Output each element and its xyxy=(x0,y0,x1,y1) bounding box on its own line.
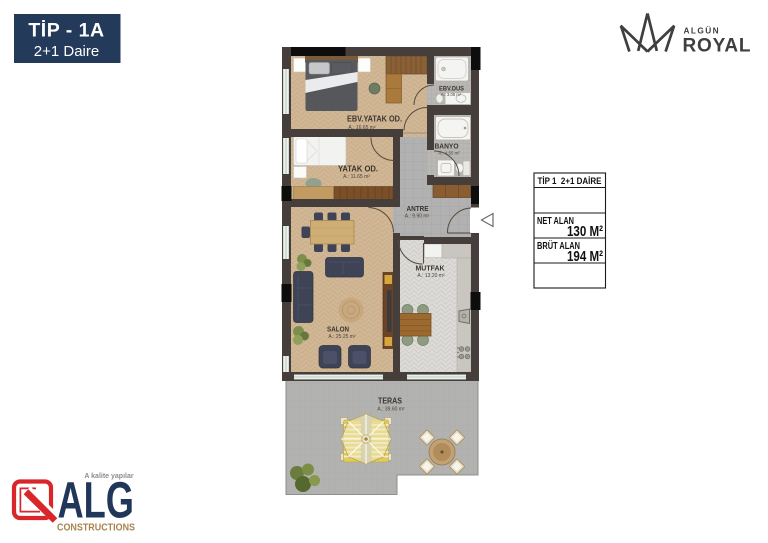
svg-text:194 M²: 194 M² xyxy=(567,248,603,265)
svg-text:A.: 3.08 m²: A.: 3.08 m² xyxy=(441,92,462,97)
svg-text:130 M²: 130 M² xyxy=(567,223,603,240)
svg-text:A.: 9.90 m²: A.: 9.90 m² xyxy=(405,214,430,220)
svg-text:A.: 13.20 m²: A.: 13.20 m² xyxy=(417,273,445,279)
svg-text:ROYAL: ROYAL xyxy=(683,36,752,57)
svg-text:2+1 Daire: 2+1 Daire xyxy=(34,43,99,60)
svg-text:A.: 39.60 m²: A.: 39.60 m² xyxy=(377,407,405,413)
svg-text:A.: 16.65 m²: A.: 16.65 m² xyxy=(348,125,376,131)
svg-text:TİP 1 2+1 DAİRE: TİP 1 2+1 DAİRE xyxy=(538,176,602,186)
svg-text:EBV.YATAK OD.: EBV.YATAK OD. xyxy=(347,115,402,124)
svg-text:TİP - 1A: TİP - 1A xyxy=(28,19,104,42)
svg-text:SALON: SALON xyxy=(327,325,349,334)
svg-text:ALG: ALG xyxy=(58,472,135,529)
svg-text:TERAS: TERAS xyxy=(378,396,402,406)
svg-text:CONSTRUCTIONS: CONSTRUCTIONS xyxy=(57,523,135,534)
svg-text:MUTFAK: MUTFAK xyxy=(416,264,445,273)
svg-text:A.: 25.25 m²: A.: 25.25 m² xyxy=(328,334,356,340)
svg-text:ANTRE: ANTRE xyxy=(407,204,429,213)
svg-text:ALGÜN: ALGÜN xyxy=(684,26,721,36)
svg-text:A.: 11.65 m²: A.: 11.65 m² xyxy=(343,174,370,180)
svg-text:YATAK OD.: YATAK OD. xyxy=(338,165,378,174)
svg-text:A.: 4.55 m²: A.: 4.55 m² xyxy=(438,151,460,156)
svg-text:BANYO: BANYO xyxy=(435,144,460,151)
